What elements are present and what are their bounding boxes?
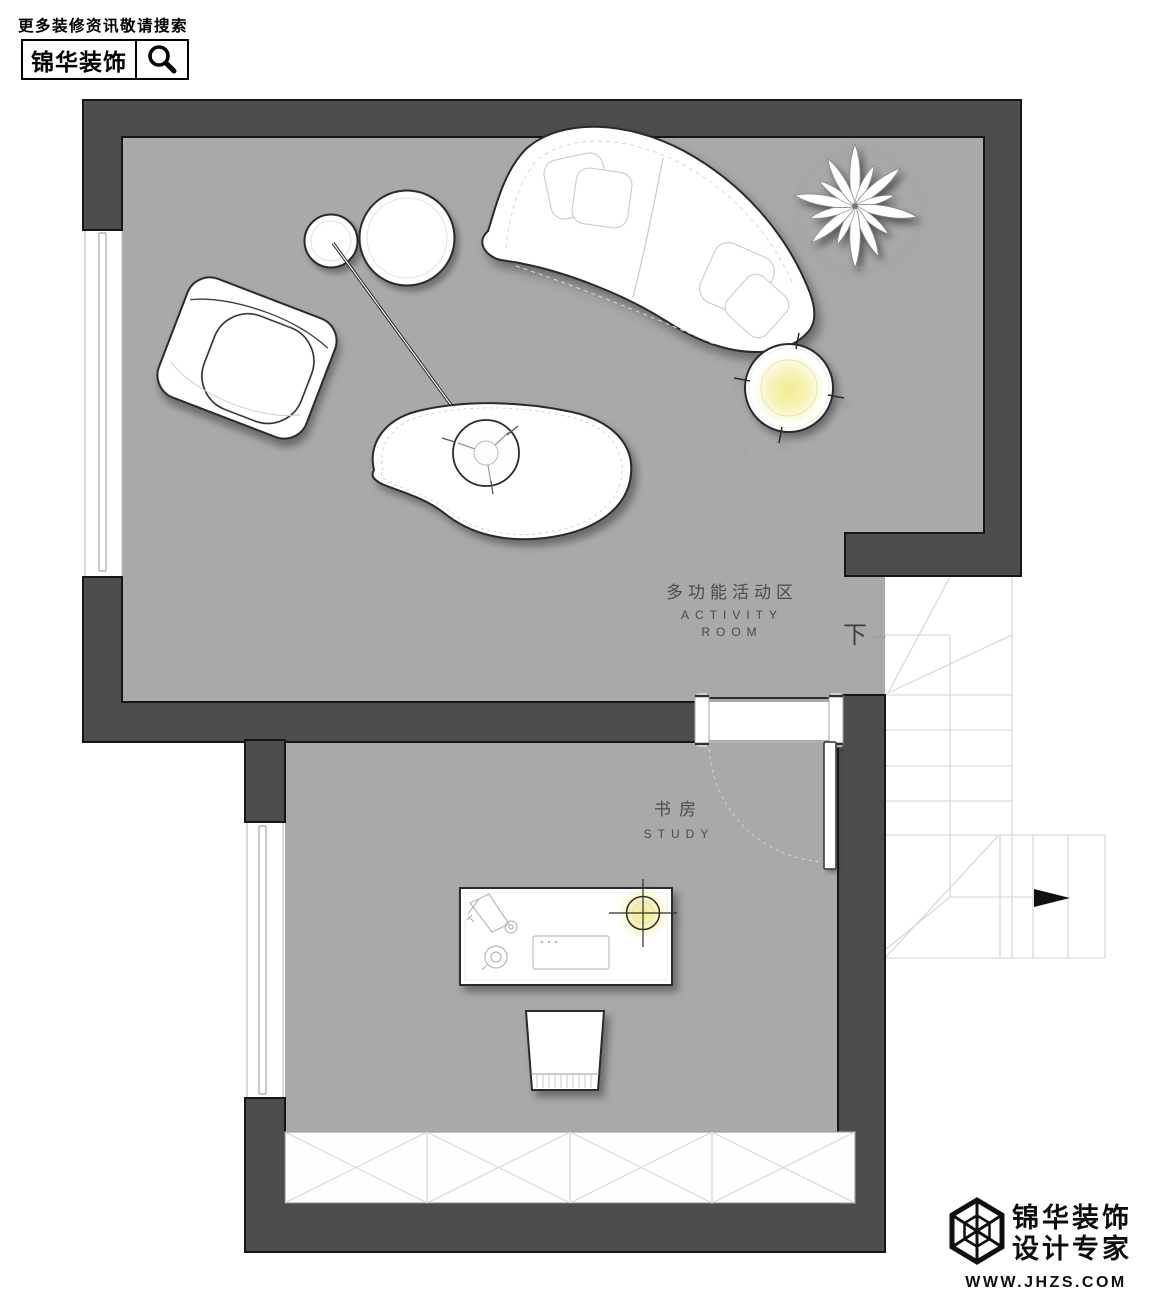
watermark: 锦华装饰 设计专家 WWW.JHZS.COM — [948, 1197, 1144, 1292]
header-brand-name: 锦华装饰 — [23, 41, 135, 78]
activity-window — [99, 233, 106, 571]
stairs-down-label: 下 — [843, 615, 867, 650]
small-round-table — [305, 215, 358, 268]
stairs-direction-arrow-icon — [1034, 889, 1070, 907]
activity-room-label: 多功能活动区 ACTIVITY ROOM — [626, 578, 838, 639]
watermark-brand-line2: 设计专家 — [1012, 1234, 1132, 1265]
activity-room-name-en1: ACTIVITY — [626, 608, 838, 622]
header-tagline: 更多装修资讯敬请搜索 — [18, 14, 188, 36]
search-icon — [135, 41, 187, 78]
wall-study-left-top — [245, 740, 285, 822]
staircase — [872, 576, 1105, 958]
header-brand-box: 锦华装饰 — [21, 39, 189, 80]
study-room-name-en: STUDY — [589, 827, 769, 841]
study-window — [259, 826, 266, 1094]
door-jamb-right — [829, 693, 843, 747]
watermark-website: WWW.JHZS.COM — [948, 1274, 1144, 1292]
floor-plan-drawing — [0, 0, 1158, 1309]
floor-plan-page: 更多装修资讯敬请搜索 锦华装饰 多功能活动区 ACTIVITY ROOM 书房 … — [0, 0, 1158, 1309]
desk-chair — [526, 1011, 604, 1090]
study-room-label: 书房 STUDY — [589, 795, 769, 841]
large-round-table — [360, 191, 455, 286]
desk — [460, 879, 677, 985]
activity-room-name-en2: ROOM — [626, 625, 838, 639]
watermark-brand-line1: 锦华装饰 — [1012, 1203, 1132, 1234]
activity-room-name-zh: 多功能活动区 — [626, 578, 838, 603]
wardrobe — [285, 1132, 855, 1203]
logo-cube-icon — [948, 1197, 1006, 1270]
door-leaf — [824, 742, 836, 869]
door-jamb-left — [695, 693, 709, 747]
study-room-name-zh: 书房 — [589, 795, 769, 820]
